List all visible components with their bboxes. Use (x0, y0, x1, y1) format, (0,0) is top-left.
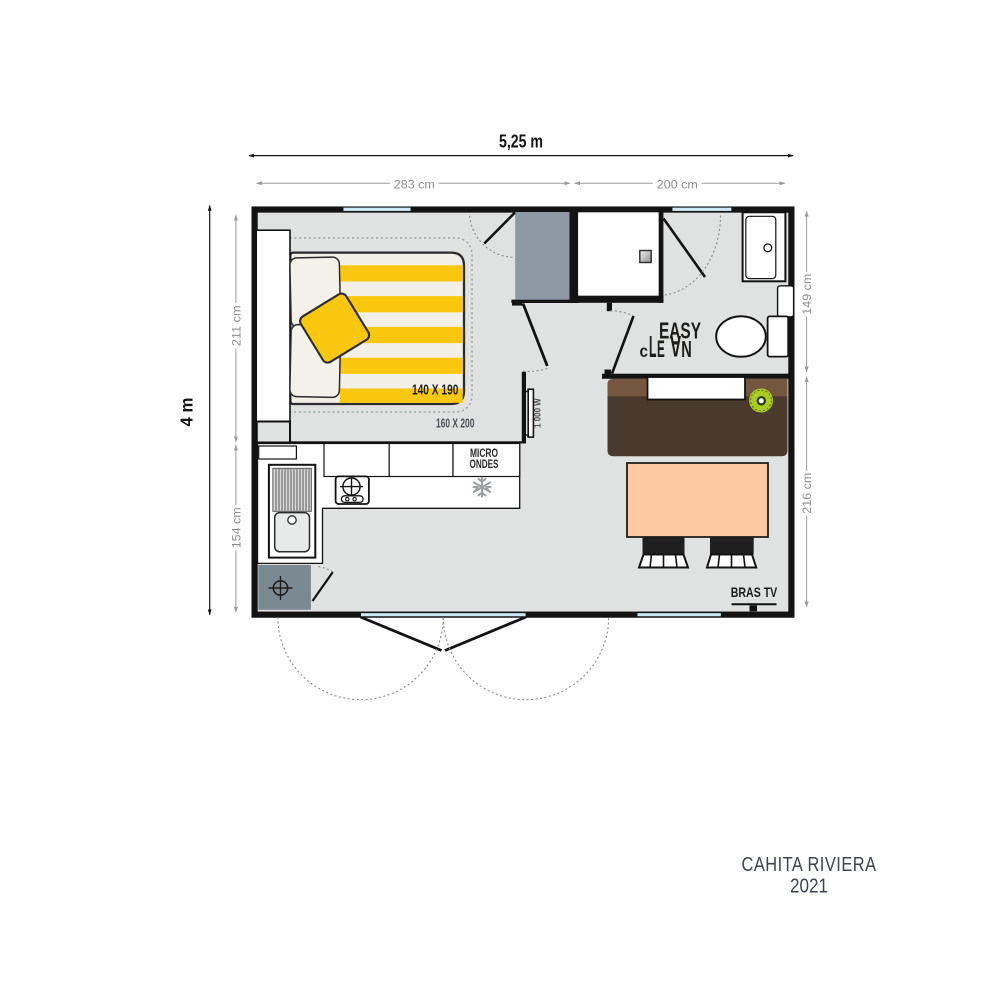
svg-text:216 cm: 216 cm (800, 473, 814, 514)
svg-text:2021: 2021 (790, 875, 828, 898)
svg-text:140 X 190: 140 X 190 (412, 383, 459, 399)
svg-text:1 000 W: 1 000 W (533, 398, 544, 428)
svg-text:L: L (649, 329, 657, 364)
svg-text:N: N (681, 336, 692, 362)
svg-text:4 m: 4 m (177, 398, 197, 427)
svg-text:200 cm: 200 cm (657, 178, 698, 192)
svg-text:211 cm: 211 cm (229, 305, 243, 346)
svg-text:CAHITA RIVIERA: CAHITA RIVIERA (742, 853, 877, 876)
svg-text:ONDES: ONDES (470, 459, 499, 471)
svg-text:149 cm: 149 cm (800, 274, 814, 315)
svg-text:E: E (657, 336, 665, 363)
svg-text:154 cm: 154 cm (229, 507, 243, 548)
svg-text:160 X 200: 160 X 200 (436, 415, 475, 430)
svg-text:BRAS TV: BRAS TV (731, 585, 778, 600)
svg-text:c: c (640, 341, 649, 361)
svg-text:5,25 m: 5,25 m (499, 131, 543, 152)
svg-text:A: A (670, 329, 682, 362)
svg-text:283 cm: 283 cm (394, 178, 435, 192)
